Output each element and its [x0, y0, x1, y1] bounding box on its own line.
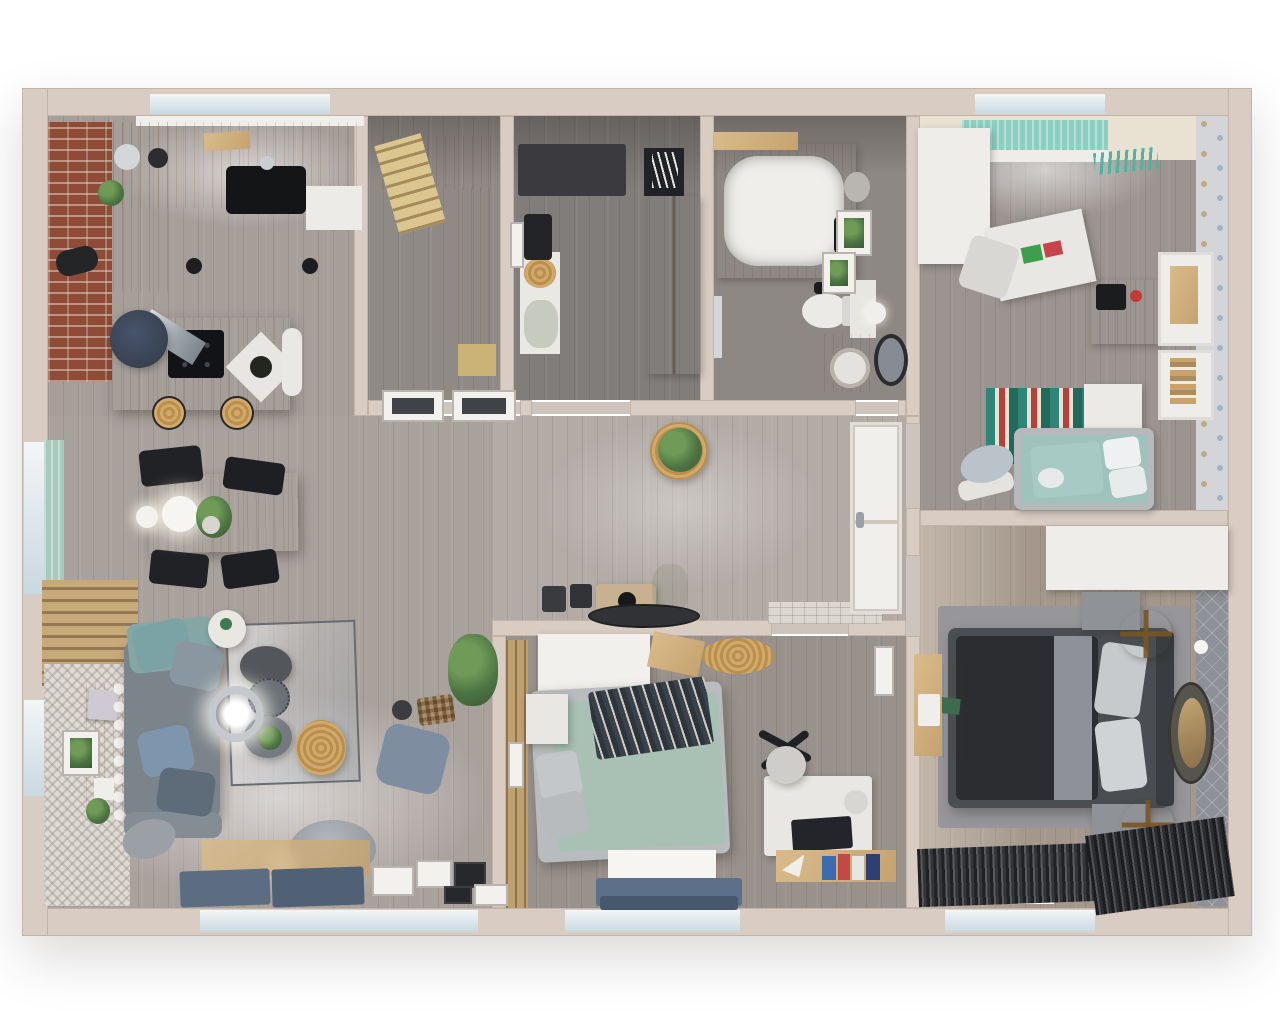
bench-book	[939, 697, 961, 715]
centerpiece-vase	[202, 516, 220, 534]
kitchen-counter-left[interactable]	[104, 122, 172, 292]
coffee-grinder	[148, 148, 168, 168]
potted-plant-large[interactable]	[448, 634, 498, 706]
window-left-dining	[24, 442, 44, 594]
gallery-frame-2[interactable]	[416, 860, 452, 888]
gallery-frame-4[interactable]	[444, 886, 472, 904]
kitchen-faucet	[260, 156, 274, 170]
hall-round-mirror[interactable]	[588, 604, 700, 628]
entry-crates[interactable]	[524, 214, 552, 260]
entry-mat[interactable]	[518, 144, 626, 196]
front-door-handle	[856, 512, 864, 528]
bar-stool-1[interactable]	[152, 396, 186, 430]
pantry-door-glass	[392, 398, 434, 414]
desk-chair-seat[interactable]	[766, 746, 806, 784]
window-kids	[975, 94, 1105, 114]
sofa-pillow-slate[interactable]	[155, 766, 217, 817]
pantry-cabinet[interactable]	[458, 344, 496, 376]
master-ceiling-light-1	[1194, 640, 1208, 654]
kitchen-sink[interactable]	[226, 166, 306, 214]
woven-basket[interactable]	[416, 694, 456, 727]
toilet[interactable]	[802, 294, 846, 328]
vanity-sink	[830, 348, 870, 388]
bedroom-wardrobe[interactable]	[538, 634, 650, 692]
bathtub[interactable]	[724, 156, 844, 266]
kids-shelf-1-toys	[1170, 266, 1198, 324]
bedroom-laptop[interactable]	[791, 816, 853, 852]
window-bottom-bedroom	[565, 910, 740, 932]
bedroom-rattan-mat[interactable]	[702, 638, 774, 674]
threshold-master-door	[906, 556, 920, 636]
ceiling-spot-1	[186, 258, 202, 274]
shelf-book-3	[852, 856, 864, 880]
dining-chair-3[interactable]	[148, 549, 209, 589]
kitchen-plant	[98, 180, 124, 206]
dining-chair-1[interactable]	[138, 445, 203, 487]
kids-shelf-2-books	[1170, 358, 1196, 404]
shelf-book-4	[866, 854, 880, 880]
master-pillow-2	[1094, 717, 1148, 792]
master-curtain-1[interactable]	[917, 843, 1099, 907]
bath-art-2-leaf	[830, 260, 848, 286]
door-mat-2[interactable]	[271, 866, 364, 907]
shelf-book-2	[838, 854, 850, 880]
floor-lamp-ring[interactable]	[208, 686, 264, 742]
wall-hall-top-b	[520, 400, 532, 416]
play-kitchen-top	[1096, 284, 1126, 310]
shelf-book-1	[822, 856, 836, 880]
hall-plant	[658, 428, 702, 472]
pampas-grass	[1178, 698, 1206, 768]
plant-table-leaves	[258, 726, 282, 750]
crib-pillow-1	[1102, 436, 1142, 471]
window-kitchen	[150, 94, 330, 114]
food-platter	[250, 356, 272, 378]
kettle	[114, 144, 140, 170]
hall-crate-2[interactable]	[570, 584, 592, 608]
wall-hall-right-a	[906, 416, 920, 424]
bath-deco-jar	[844, 172, 870, 202]
floorplan-stage	[0, 0, 1280, 1024]
window-bottom-living	[200, 910, 478, 932]
wall-entry-bath	[700, 116, 714, 416]
wall-kids-master	[920, 510, 1228, 526]
wall-hall-right-b	[906, 508, 920, 556]
island-side-panel	[282, 328, 302, 396]
bath-sconce[interactable]	[864, 302, 886, 324]
master-laptop[interactable]	[918, 694, 940, 726]
range-hood[interactable]	[110, 310, 168, 368]
window-left-living	[24, 700, 44, 796]
curtain-dining[interactable]	[44, 440, 64, 596]
master-wardrobe[interactable]	[1046, 526, 1228, 590]
pendant-lamp-small[interactable]	[136, 506, 158, 528]
entry-flowers	[524, 300, 558, 348]
wall-hall-top-d	[898, 400, 906, 416]
door-mat-1[interactable]	[179, 868, 270, 907]
crib-plush	[1038, 468, 1064, 488]
threshold-entry-opening	[532, 402, 630, 414]
laptop-console[interactable]	[94, 778, 114, 800]
towel-rail	[714, 296, 722, 358]
vase-dark	[392, 700, 412, 720]
closet-door-glass	[462, 398, 506, 414]
pouf-rattan[interactable]	[296, 720, 346, 776]
wall-hall-top-c	[630, 400, 856, 416]
entry-wardrobe[interactable]	[648, 196, 700, 374]
entry-console-mat	[524, 258, 556, 288]
bath-shelf	[714, 132, 798, 150]
wall-outer-right	[1228, 88, 1252, 936]
play-kitchen-burner	[1130, 290, 1142, 302]
pendant-lamp-large[interactable]	[162, 496, 198, 532]
gallery-frame-1[interactable]	[372, 866, 414, 896]
master-throw	[1054, 636, 1092, 800]
bedroom-wall-frame[interactable]	[508, 742, 524, 788]
dishwasher[interactable]	[306, 186, 362, 230]
bath-art-1-leaf	[844, 218, 864, 248]
entry-wall-frames[interactable]	[510, 222, 524, 268]
vanity-mirror[interactable]	[874, 334, 908, 386]
hall-crate-1[interactable]	[542, 586, 566, 612]
desk-lamp[interactable]	[844, 790, 868, 814]
threshold-bath-door	[856, 402, 898, 414]
art-print-leaf	[70, 738, 92, 768]
threshold-kids-door	[906, 424, 920, 508]
bar-stool-2[interactable]	[220, 396, 254, 430]
side-table-deco	[220, 618, 232, 630]
window-bench-mat-2	[600, 896, 738, 910]
gallery-frame-5[interactable]	[474, 884, 508, 906]
bedroom-nightstand[interactable]	[526, 694, 568, 744]
rattan-pendant-top[interactable]	[1120, 610, 1172, 658]
pantry-shelf-right[interactable]	[462, 188, 496, 346]
window-bottom-master	[945, 910, 1095, 932]
bedroom-right-frame[interactable]	[874, 646, 894, 696]
small-plant-living	[86, 798, 110, 824]
coat-rack-twig	[652, 152, 678, 188]
ceiling-spot-2	[302, 258, 318, 274]
cutting-board-counter	[203, 130, 250, 151]
